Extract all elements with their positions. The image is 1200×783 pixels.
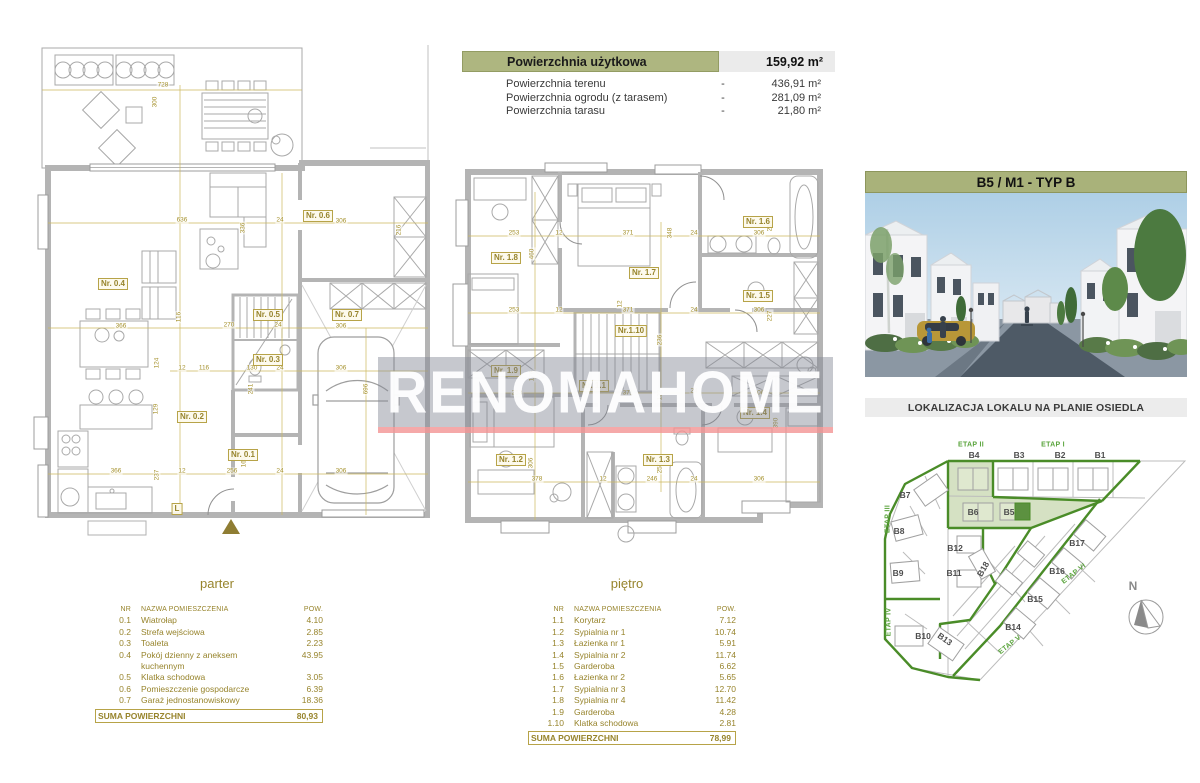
room-label: Nr. 0.2 [177,411,207,423]
dimension-label: 306 [753,230,766,237]
dimension-label: 246 [646,476,659,483]
dimension-label: 253 [508,307,521,314]
cell-nr: 0.5 [95,672,131,683]
area-row-value: 21,80 m² [729,105,835,119]
dimension-label: 306 [335,365,348,372]
dimension-label: 371 [622,230,635,237]
cell-nr: 1.2 [528,627,564,638]
col-name: NAZWA POMIESZCZENIA [564,604,694,615]
col-name: NAZWA POMIESZCZENIA [131,604,281,615]
site-plan-title-text: LOKALIZACJA LOKALU NA PLANIE OSIEDLA [908,402,1144,414]
floor-plan-parter-drawing [30,45,430,560]
building-label: B3 [1014,450,1025,460]
table-row: 1.4Sypialnia nr 211.74 [528,650,736,661]
building-label: B15 [1027,594,1043,604]
cell-name: Klatka schodowa [131,672,281,683]
sum-label: SUMA POWIERZCHNI [531,733,710,743]
cell-name: Strefa wejściowa [131,627,281,638]
cell-nr: 1.9 [528,707,564,718]
dimension-label: 124 [154,357,161,370]
cell-nr: 0.2 [95,627,131,638]
highlighted-unit-m1 [1015,503,1030,520]
room-label: Nr. 1.2 [496,454,526,466]
table-row: 1.9Garderoba4.28 [528,707,736,718]
area-row-value: 436,91 m² [729,78,835,92]
room-label: Nr.1.10 [615,325,647,337]
building-label: B14 [1005,622,1021,632]
room-label: Nr. 0.6 [303,210,333,222]
dimension-label: 336 [240,222,247,235]
cell-area: 6.39 [281,684,323,695]
dimension-label: 24 [275,217,284,224]
estate-render-photo [865,193,1187,377]
dimension-label: 300 [152,96,159,109]
dimension-label: 636 [176,217,189,224]
usable-area-label: Powierzchnia użytkowa [462,51,719,72]
dimension-label: 460 [529,248,536,261]
room-label: Nr. 0.4 [98,278,128,290]
unit-title-text: B5 / M1 - TYP B [977,175,1076,190]
sum-label: SUMA POWIERZCHNI [98,711,297,721]
building-label: B9 [893,568,904,578]
dimension-label: 24 [689,307,698,314]
cell-area: 11.74 [694,650,736,661]
compass-icon [1129,600,1163,634]
cell-nr: 0.3 [95,638,131,649]
dimension-label: 256 [226,468,239,475]
dimension-label: 306 [335,323,348,330]
table-row: 1.2Sypialnia nr 110.74 [528,627,736,638]
cell-area: 5.91 [694,638,736,649]
cell-area: 2.23 [281,638,323,649]
dimension-label: 306 [335,468,348,475]
area-row-label: Powierzchnia ogrodu (z tarasem) [462,92,717,106]
watermark-red-line [378,427,833,433]
cell-nr: 1.1 [528,615,564,626]
cell-area: 5.65 [694,672,736,683]
dimension-label: 24 [275,468,284,475]
dimension-label: 12 [598,476,607,483]
cell-area: 18.36 [281,695,323,706]
floor-plan-parter: Nr. 0.4 Nr. 0.6 Nr. 0.5 Nr. 0.7 Nr. 0.3 … [30,45,430,560]
caption-pietro: piętro [582,576,672,591]
dimension-label: 348 [667,227,674,240]
dimension-label: 253 [508,230,521,237]
cell-nr: 0.1 [95,615,131,626]
building-label: B16 [1049,566,1065,576]
dimension-label: 696 [363,383,370,396]
dimension-label: 116 [198,365,210,372]
usable-area-row: Powierzchnia użytkowa 159,92 m² [462,51,835,72]
cell-nr: 0.7 [95,695,131,706]
cell-nr: 0.6 [95,684,131,695]
dimension-label: 12 [554,307,563,314]
cell-name: Garderoba [564,661,694,672]
cell-area: 12.70 [694,684,736,695]
room-label: Nr. 0.5 [253,309,283,321]
dimension-label: 24 [273,322,282,329]
table-header: NR NAZWA POMIESZCZENIA POW. [528,604,736,615]
cell-name: Korytarz [564,615,694,626]
room-label: Nr. 0.1 [228,449,258,461]
dimension-label: 270 [223,322,236,329]
col-nr: NR [528,604,564,615]
table-row: 0.2Strefa wejściowa2.85 [95,627,323,638]
table-row: 0.7Garaż jednostanowiskowy18.36 [95,695,323,706]
cell-nr: 1.6 [528,672,564,683]
area-row: Powierzchnia terenu - 436,91 m² [462,78,835,92]
cell-name: Łazienka nr 1 [564,638,694,649]
dimension-label: 366 [115,323,128,330]
cell-nr: 1.5 [528,661,564,672]
dimension-label: 12 [177,468,186,475]
room-label: Nr. 1.5 [743,290,773,302]
cell-name: Sypialnia nr 1 [564,627,694,638]
table-row: 1.7Sypialnia nr 312.70 [528,684,736,695]
table-row: 0.3Toaleta2.23 [95,638,323,649]
building-label: B11 [946,568,961,578]
table-row: 1.1Korytarz7.12 [528,615,736,626]
dimension-label: 12 [617,299,624,308]
dimension-label: 366 [110,468,123,475]
etap-label: ETAP II [958,442,984,449]
room-table-parter: NR NAZWA POMIESZCZENIA POW. 0.1Wiatrołap… [95,604,323,723]
cell-name: Toaleta [131,638,281,649]
cell-area: 43.95 [281,650,323,673]
cell-area: 2.81 [694,718,736,729]
dimension-label: 12 [554,230,563,237]
room-label: Nr. 0.3 [253,354,283,366]
table-sum-row: SUMA POWIERZCHNI 78,99 [528,731,736,745]
area-row-dash: - [717,92,729,106]
cell-area: 4.28 [694,707,736,718]
unit-title-bar: B5 / M1 - TYP B [865,171,1187,193]
cell-name: Łazienka nr 2 [564,672,694,683]
watermark-text: RENOMAHOME [386,362,824,421]
cell-name: Wiatrołap [131,615,281,626]
cell-name: Pomieszczenie gospodarcze [131,684,281,695]
area-row-dash: - [717,105,729,119]
building-label: B6 [968,507,979,517]
room-label: Nr. 0.7 [332,309,362,321]
building-label: B4 [969,450,980,460]
dimension-label: 728 [157,82,170,89]
cell-area: 2.85 [281,627,323,638]
building-label: B8 [894,526,905,536]
area-row-dash: - [717,78,729,92]
cell-area: 3.05 [281,672,323,683]
table-row: 1.6Łazienka nr 25.65 [528,672,736,683]
building-label: B5 [1004,507,1015,517]
watermark: RENOMAHOME [378,357,833,427]
cell-name: Sypialnia nr 2 [564,650,694,661]
dimension-label: 241 [248,383,255,396]
cell-area: 7.12 [694,615,736,626]
dimension-label: 306 [528,457,535,470]
room-label: Nr. 1.7 [629,267,659,279]
building-label: B17 [1069,538,1085,548]
building-label: B2 [1055,450,1066,460]
table-row: 1.8Sypialnia nr 411.42 [528,695,736,706]
dimension-label: 227 [767,310,774,323]
cell-nr: 1.10 [528,718,564,729]
area-row: Powierzchnia ogrodu (z tarasem) - 281,09… [462,92,835,106]
col-nr: NR [95,604,131,615]
entrance-arrow-icon [222,519,240,534]
cell-name: Sypialnia nr 4 [564,695,694,706]
table-header: NR NAZWA POMIESZCZENIA POW. [95,604,323,615]
table-row: 0.5Klatka schodowa3.05 [95,672,323,683]
room-label: Nr. 1.6 [743,216,773,228]
cell-area: 4.10 [281,615,323,626]
dimension-label: 12 [177,365,186,372]
col-area: POW. [694,604,736,615]
etap-label: ETAP IV [886,608,893,637]
dimension-label: 216 [396,224,403,237]
etap-label: ETAP III [885,505,892,533]
dimension-label: 306 [753,307,766,314]
building-label: B10 [915,631,931,641]
table-row: 0.1Wiatrołap4.10 [95,615,323,626]
dimension-label: 306 [753,476,766,483]
col-area: POW. [281,604,323,615]
site-plan-drawing [865,424,1195,690]
table-sum-row: SUMA POWIERZCHNI 80,93 [95,709,323,723]
etap-label: ETAP I [1041,442,1065,449]
dimension-label: 237 [154,469,161,482]
area-row-value: 281,09 m² [729,92,835,106]
table-row: 1.3Łazienka nr 15.91 [528,638,736,649]
sum-value: 80,93 [297,711,318,721]
cell-name: Sypialnia nr 3 [564,684,694,695]
room-label: L [172,503,183,515]
table-row: 0.6Pomieszczenie gospodarcze6.39 [95,684,323,695]
cell-nr: 1.8 [528,695,564,706]
cell-area: 6.62 [694,661,736,672]
dimension-label: 378 [531,476,544,483]
cell-name: Garaż jednostanowiskowy [131,695,281,706]
caption-parter: parter [172,576,262,591]
cell-area: 10.74 [694,627,736,638]
compass-north-label: N [1129,579,1138,593]
cell-name: Garderoba [564,707,694,718]
building-label: B1 [1095,450,1106,460]
area-row-label: Powierzchnia terenu [462,78,717,92]
dimension-label: 236 [657,334,664,347]
site-plan-title-bar: LOKALIZACJA LOKALU NA PLANIE OSIEDLA [865,398,1187,417]
area-row: Powierzchnia tarasu - 21,80 m² [462,105,835,119]
area-summary-table: Powierzchnia użytkowa 159,92 m² Powierzc… [462,51,835,119]
dimension-label: 116 [176,311,183,323]
usable-area-value: 159,92 m² [719,51,835,72]
dimension-label: 24 [689,476,698,483]
cell-nr: 1.3 [528,638,564,649]
area-row-label: Powierzchnia tarasu [462,105,717,119]
room-label: Nr. 1.3 [643,454,673,466]
dimension-label: 306 [335,218,348,225]
building-label: B12 [947,543,963,553]
sum-value: 78,99 [710,733,731,743]
table-row: 0.4Pokój dzienny z aneksem kuchennym43.9… [95,650,323,673]
table-row: 1.10Klatka schodowa2.81 [528,718,736,729]
estate-site-plan: ETAP I ETAP II ETAP III ETAP IV ETAP V E… [865,424,1195,690]
cell-nr: 1.7 [528,684,564,695]
room-label: Nr. 1.8 [491,252,521,264]
room-table-pietro: NR NAZWA POMIESZCZENIA POW. 1.1Korytarz7… [528,604,736,745]
cell-nr: 1.4 [528,650,564,661]
dimension-label: 24 [689,230,698,237]
table-row: 1.5Garderoba6.62 [528,661,736,672]
cell-name: Pokój dzienny z aneksem kuchennym [131,650,281,673]
building-label: B7 [900,490,911,500]
dimension-label: 129 [153,403,160,416]
cell-name: Klatka schodowa [564,718,694,729]
cell-nr: 0.4 [95,650,131,673]
cell-area: 11.42 [694,695,736,706]
